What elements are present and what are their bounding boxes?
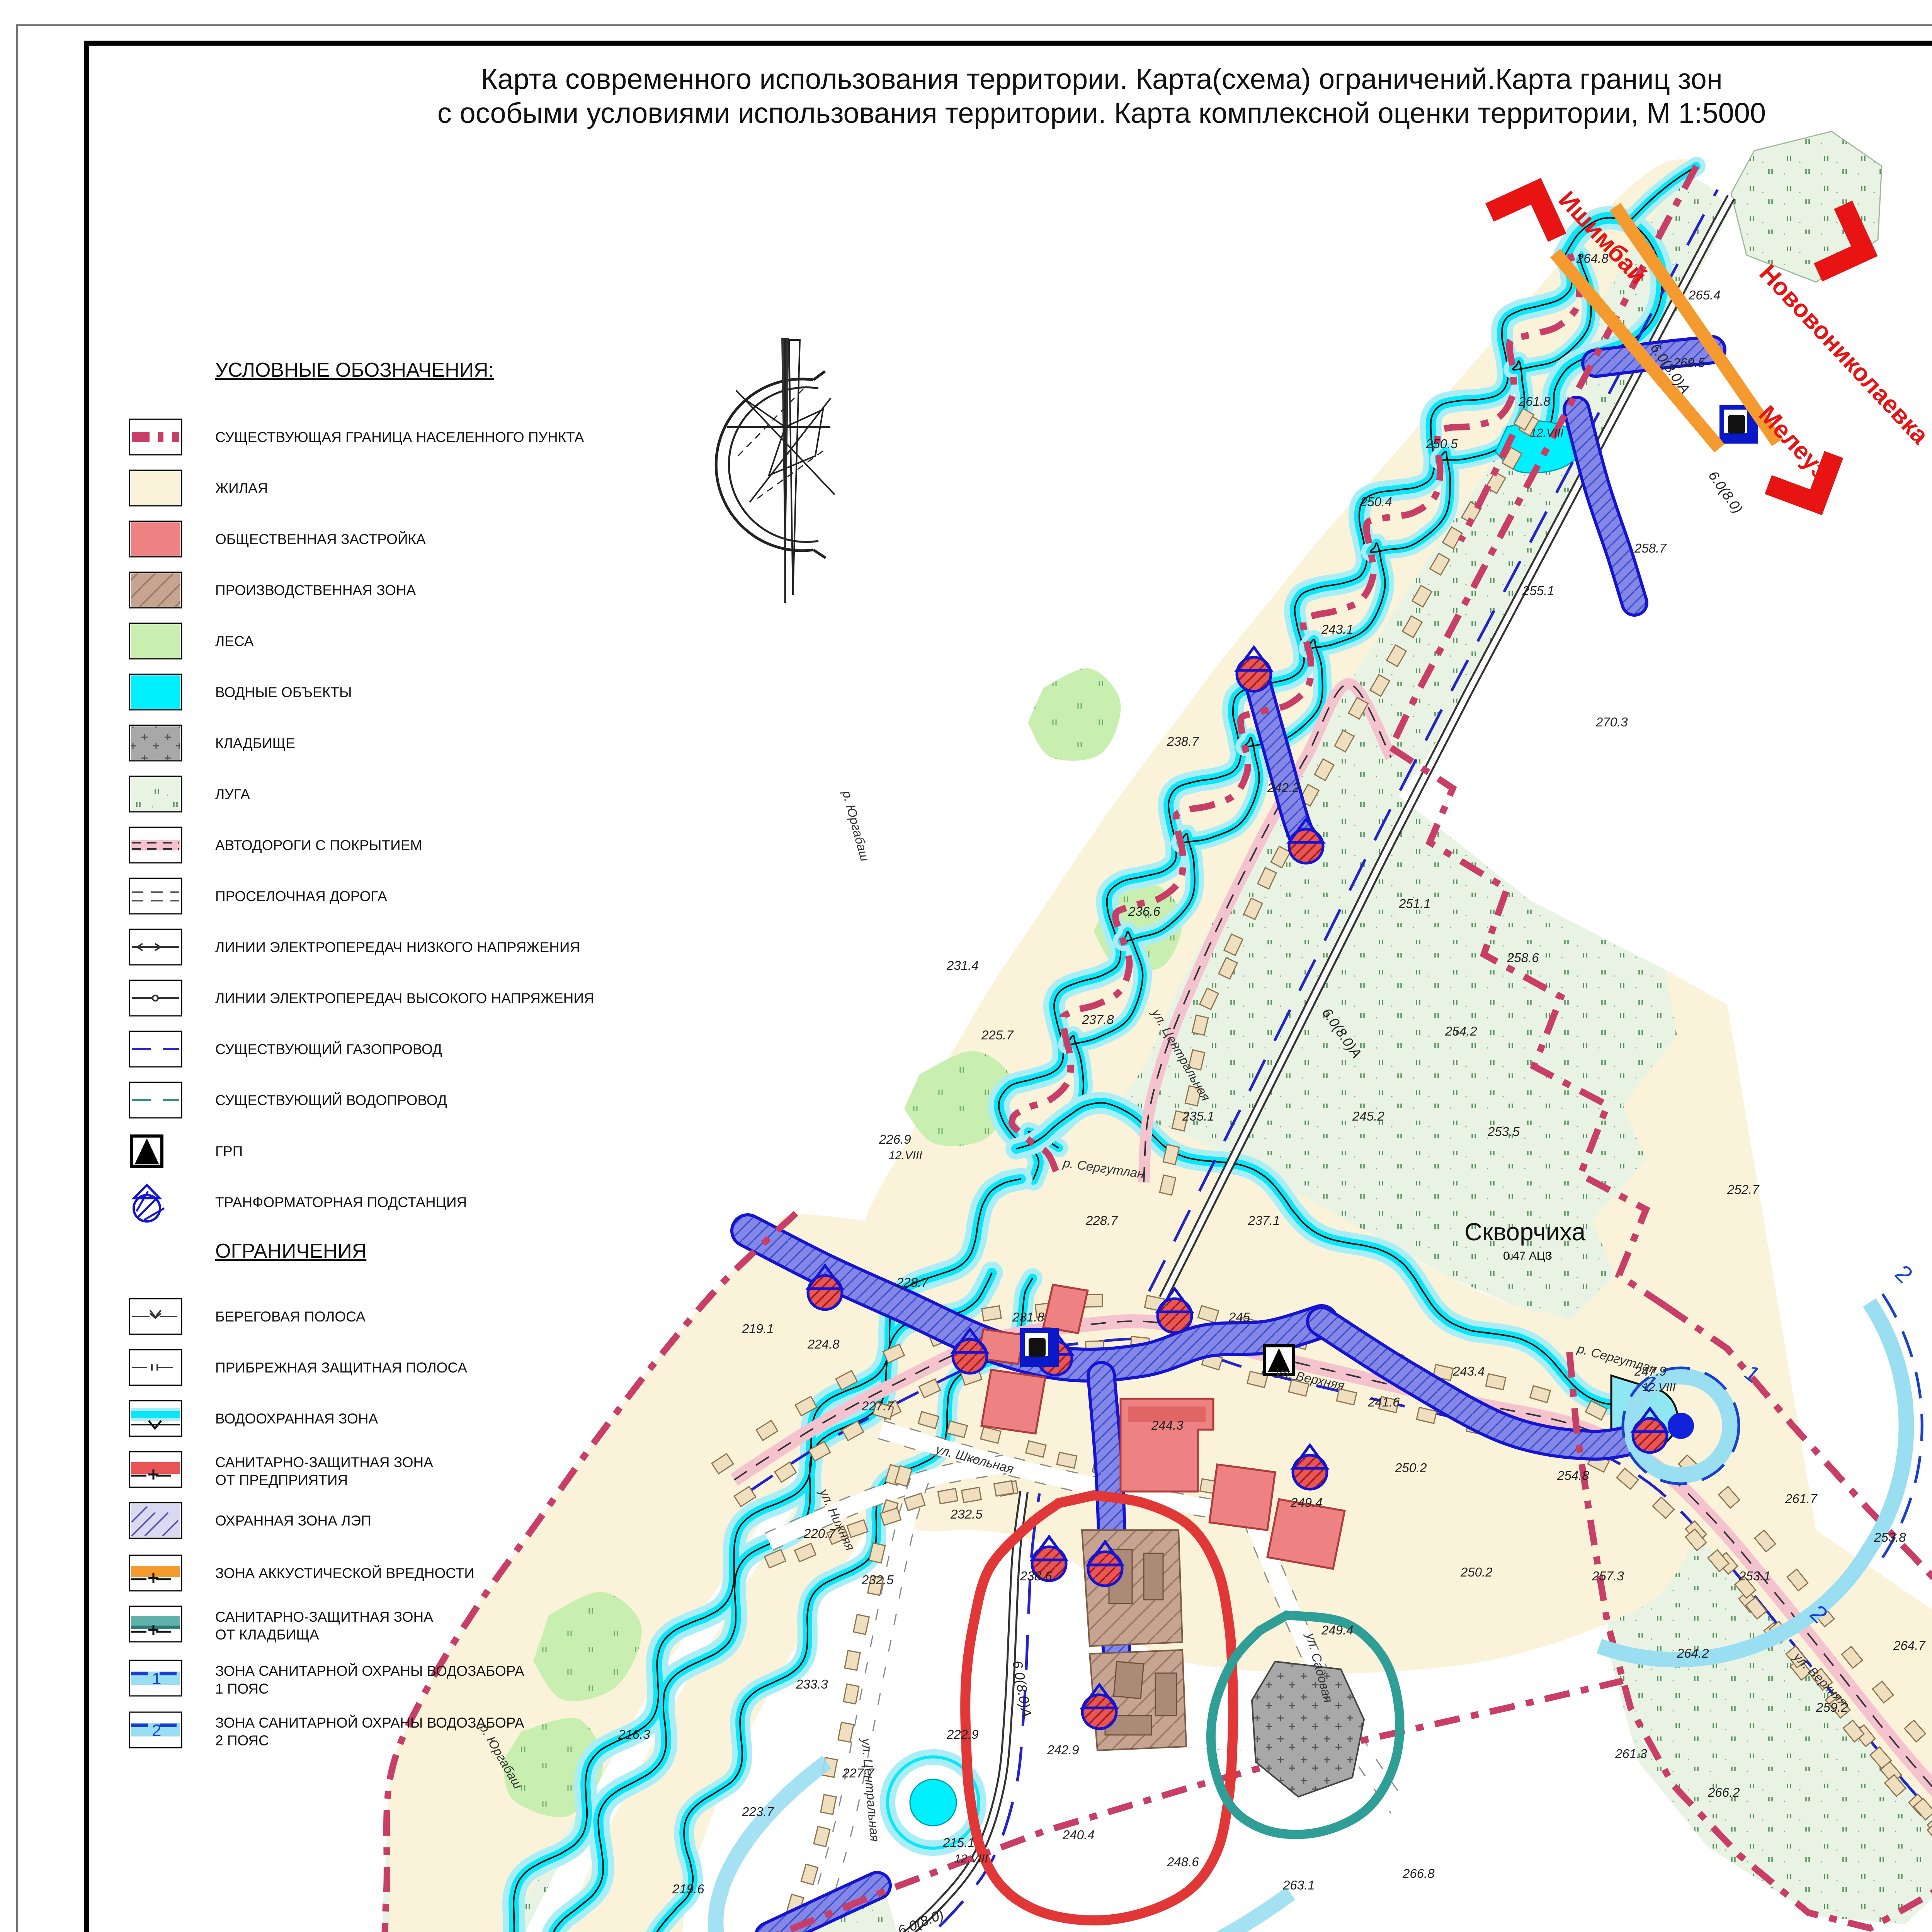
svg-text:ОТ КЛАДБИЩА: ОТ КЛАДБИЩА	[215, 1627, 319, 1643]
svg-text:242.2: 242.2	[1267, 781, 1299, 795]
svg-text:242.9: 242.9	[1047, 1743, 1079, 1757]
svg-text:253.5: 253.5	[1487, 1124, 1520, 1139]
svg-text:270.3: 270.3	[1595, 715, 1628, 729]
svg-text:263.1: 263.1	[1282, 1878, 1315, 1892]
svg-text:261.8: 261.8	[1518, 394, 1551, 408]
svg-text:258.6: 258.6	[1507, 951, 1539, 965]
svg-text:266.2: 266.2	[1708, 1785, 1740, 1799]
svg-text:2: 2	[765, 0, 778, 5]
svg-text:261.3: 261.3	[1615, 1747, 1647, 1761]
svg-text:228.7: 228.7	[1085, 1213, 1118, 1228]
svg-text:243.1: 243.1	[1321, 622, 1354, 636]
svg-text:254.8: 254.8	[1557, 1468, 1589, 1483]
svg-text:248.6: 248.6	[1167, 1855, 1199, 1869]
svg-text:249.4: 249.4	[1321, 1623, 1354, 1637]
svg-text:219.1: 219.1	[742, 1321, 774, 1336]
svg-text:237.8: 237.8	[1082, 1012, 1114, 1027]
svg-text:233.3: 233.3	[796, 1677, 828, 1691]
svg-text:с особыми условиями использова: с особыми условиями использования террит…	[437, 97, 1766, 129]
svg-text:ЖИЛАЯ: ЖИЛАЯ	[215, 480, 268, 496]
svg-text:223.7: 223.7	[742, 1804, 774, 1819]
svg-text:258.7: 258.7	[1634, 541, 1667, 555]
svg-text:ОТ ПРЕДПРИЯТИЯ: ОТ ПРЕДПРИЯТИЯ	[215, 1472, 348, 1488]
svg-text:215.1: 215.1	[942, 1835, 975, 1850]
svg-text:235.1: 235.1	[1182, 1109, 1214, 1123]
svg-text:220.7: 220.7	[803, 1526, 836, 1541]
svg-text:228.7: 228.7	[896, 1275, 929, 1289]
svg-text:ПРОИЗВОДСТВЕННАЯ ЗОНА: ПРОИЗВОДСТВЕННАЯ ЗОНА	[215, 582, 416, 598]
svg-text:САНИТАРНО-ЗАЩИТНАЯ ЗОНА: САНИТАРНО-ЗАЩИТНАЯ ЗОНА	[215, 1454, 433, 1470]
svg-text:2 ПОЯС: 2 ПОЯС	[215, 1733, 269, 1748]
svg-text:231.4: 231.4	[946, 958, 979, 973]
svg-text:СУЩЕСТВУЮЩИЙ ВОДОПРОВОД: СУЩЕСТВУЮЩИЙ ВОДОПРОВОД	[215, 1092, 447, 1108]
svg-text:252.7: 252.7	[1727, 1182, 1760, 1197]
svg-text:254.2: 254.2	[1445, 1024, 1477, 1038]
svg-text:ПРИБРЕЖНАЯ ЗАЩИТНАЯ ПОЛОСА: ПРИБРЕЖНАЯ ЗАЩИТНАЯ ПОЛОСА	[215, 1360, 467, 1376]
svg-text:ВОДООХРАННАЯ ЗОНА: ВОДООХРАННАЯ ЗОНА	[215, 1411, 378, 1427]
svg-text:ЛИНИИ ЭЛЕКТРОПЕРЕДАЧ НИЗКОГО Н: ЛИНИИ ЭЛЕКТРОПЕРЕДАЧ НИЗКОГО НАПРЯЖЕНИЯ	[215, 939, 580, 955]
svg-text:225.7: 225.7	[981, 1028, 1014, 1042]
svg-text:КЛАДБИЩЕ: КЛАДБИЩЕ	[215, 735, 295, 751]
svg-text:250.2: 250.2	[1460, 1565, 1493, 1579]
svg-text:СУЩЕСТВУЮЩИЙ ГАЗОПРОВОД: СУЩЕСТВУЮЩИЙ ГАЗОПРОВОД	[215, 1041, 442, 1057]
svg-text:238.6: 238.6	[1020, 1569, 1052, 1583]
svg-text:12.VIII: 12.VIII	[889, 1149, 922, 1162]
svg-text:244.3: 244.3	[1151, 1418, 1184, 1432]
svg-text:236.6: 236.6	[1128, 904, 1160, 918]
svg-text:264.7: 264.7	[1893, 1638, 1926, 1653]
svg-text:1: 1	[152, 1669, 161, 1688]
svg-text:222.9: 222.9	[946, 1727, 979, 1742]
svg-text:12.VIII: 12.VIII	[954, 1852, 988, 1865]
svg-text:237.1: 237.1	[1248, 1213, 1280, 1228]
svg-text:250.5: 250.5	[1425, 437, 1458, 451]
svg-text:253.1: 253.1	[1738, 1569, 1771, 1583]
svg-text:ОГРАНИЧЕНИЯ: ОГРАНИЧЕНИЯ	[215, 1240, 366, 1262]
svg-text:245.2: 245.2	[1352, 1109, 1384, 1123]
svg-text:ГРП: ГРП	[215, 1143, 243, 1159]
svg-text:ЛЕСА: ЛЕСА	[215, 633, 254, 649]
svg-text:ЗОНА АККУСТИЧЕСКОЙ ВРЕДНОСТИ: ЗОНА АККУСТИЧЕСКОЙ ВРЕДНОСТИ	[215, 1565, 474, 1581]
svg-text:250.4: 250.4	[1360, 495, 1392, 509]
svg-text:219.6: 219.6	[672, 1882, 704, 1896]
svg-text:12.VIII: 12.VIII	[1530, 427, 1564, 439]
svg-text:ПРОСЕЛОЧНАЯ ДОРОГА: ПРОСЕЛОЧНАЯ ДОРОГА	[215, 888, 387, 904]
svg-text:ЗОНА САНИТАРНОЙ ОХРАНЫ ВОДОЗАБ: ЗОНА САНИТАРНОЙ ОХРАНЫ ВОДОЗАБОРА	[215, 1663, 524, 1679]
svg-text:224.8: 224.8	[807, 1337, 840, 1351]
svg-text:240.4: 240.4	[1062, 1828, 1095, 1842]
svg-text:226.9: 226.9	[879, 1132, 911, 1146]
svg-text:БЕРЕГОВАЯ ПОЛОСА: БЕРЕГОВАЯ ПОЛОСА	[215, 1309, 366, 1325]
svg-text:1 ПОЯС: 1 ПОЯС	[215, 1681, 269, 1697]
svg-text:СУЩЕСТВУЮЩАЯ ГРАНИЦА НАСЕЛЕННО: СУЩЕСТВУЮЩАЯ ГРАНИЦА НАСЕЛЕННОГО ПУНКТА	[215, 429, 584, 445]
svg-text:241.6: 241.6	[1367, 1395, 1400, 1409]
svg-text:238.7: 238.7	[1167, 734, 1199, 748]
svg-text:ЗОНА САНИТАРНОЙ ОХРАНЫ ВОДОЗАБ: ЗОНА САНИТАРНОЙ ОХРАНЫ ВОДОЗАБОРА	[215, 1714, 524, 1731]
svg-text:250.2: 250.2	[1395, 1461, 1427, 1475]
svg-text:264.2: 264.2	[1677, 1646, 1709, 1660]
svg-text:232.5: 232.5	[861, 1573, 894, 1587]
svg-text:2: 2	[152, 1721, 161, 1740]
svg-text:243.4: 243.4	[1452, 1364, 1485, 1378]
svg-text:255.1: 255.1	[1522, 583, 1554, 598]
svg-text:АВТОДОРОГИ С ПОКРЫТИЕМ: АВТОДОРОГИ С ПОКРЫТИЕМ	[215, 837, 422, 853]
svg-text:245: 245	[1228, 1310, 1250, 1324]
svg-text:ТРАНФОРМАТОРНАЯ ПОДСТАНЦИЯ: ТРАНФОРМАТОРНАЯ ПОДСТАНЦИЯ	[215, 1194, 467, 1210]
svg-text:216.3: 216.3	[618, 1727, 650, 1742]
svg-text:Карта современного использован: Карта современного использования террито…	[481, 63, 1722, 95]
svg-text:232.5: 232.5	[950, 1507, 983, 1521]
svg-text:265.4: 265.4	[1688, 288, 1721, 302]
svg-text:257.3: 257.3	[1592, 1569, 1624, 1583]
svg-text:САНИТАРНО-ЗАЩИТНАЯ ЗОНА: САНИТАРНО-ЗАЩИТНАЯ ЗОНА	[215, 1609, 433, 1625]
svg-text:253.8: 253.8	[1874, 1530, 1906, 1544]
svg-text:251.1: 251.1	[1398, 896, 1431, 911]
svg-text:Скворчиха: Скворчиха	[1464, 1218, 1586, 1246]
svg-text:ЛИНИИ ЭЛЕКТРОПЕРЕДАЧ ВЫСОКОГО: ЛИНИИ ЭЛЕКТРОПЕРЕДАЧ ВЫСОКОГО НАПРЯЖЕНИЯ	[215, 990, 594, 1006]
svg-text:266.8: 266.8	[1402, 1866, 1435, 1881]
svg-text:ЛУГА: ЛУГА	[215, 786, 250, 802]
svg-text:УСЛОВНЫЕ ОБОЗНАЧЕНИЯ:: УСЛОВНЫЕ ОБОЗНАЧЕНИЯ:	[215, 359, 494, 381]
svg-text:0.47 АЦЗ: 0.47 АЦЗ	[1503, 1250, 1552, 1262]
svg-text:ВОДНЫЕ ОБЪЕКТЫ: ВОДНЫЕ ОБЪЕКТЫ	[215, 684, 352, 700]
svg-text:261.7: 261.7	[1785, 1492, 1818, 1506]
svg-text:12.VIII: 12.VIII	[1642, 1381, 1676, 1394]
svg-text:249.4: 249.4	[1290, 1495, 1323, 1510]
svg-text:ОХРАННАЯ ЗОНА ЛЭП: ОХРАННАЯ ЗОНА ЛЭП	[215, 1513, 371, 1529]
svg-text:227.7: 227.7	[861, 1399, 894, 1413]
svg-text:264.8: 264.8	[1576, 251, 1609, 265]
svg-text:231.8: 231.8	[1012, 1310, 1044, 1324]
svg-text:ОБЩЕСТВЕННАЯ ЗАСТРОЙКА: ОБЩЕСТВЕННАЯ ЗАСТРОЙКА	[215, 531, 426, 547]
